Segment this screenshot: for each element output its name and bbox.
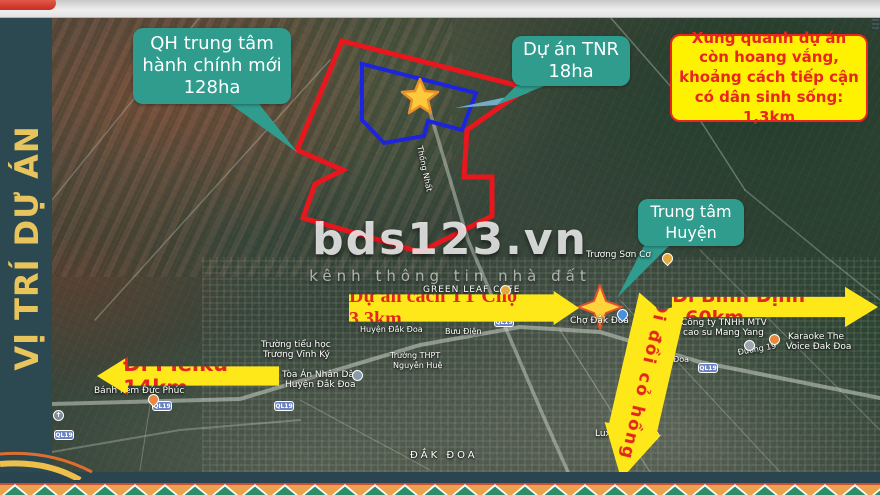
promo-map-image: bds123.vn kênh thông tin nhà đất Trương … [0,0,880,495]
arrow-market-distance: Dự án cách TT Chợ 3,3km [349,291,579,325]
watermark-title: bds123.vn [300,214,600,265]
red-pill-decoration [0,0,56,10]
corner-arc-decoration [0,450,100,480]
watermark-subtitle: kênh thông tin nhà đất [300,267,600,285]
watermark: bds123.vn kênh thông tin nhà đất [300,214,600,285]
callout-qh-admin-center: QH trung tâm hành chính mới 128ha [133,28,291,104]
callout-district-center-text: Trung tâm Huyện [638,202,744,244]
callout-tnr-text: Dự án TNR 18ha [512,39,630,84]
page-title: VỊ TRÍ DỰ ÁN [8,125,46,370]
warning-note-text: Xung quanh dự án còn hoang vắng, khoảng … [678,29,860,128]
warning-note-box: Xung quanh dự án còn hoang vắng, khoảng … [670,34,868,122]
callout-tnr-project: Dự án TNR 18ha [512,36,630,86]
callout-qh-text: QH trung tâm hành chính mới 128ha [137,33,287,99]
ethnic-pattern-border [0,483,880,495]
callout-district-center: Trung tâm Huyện [638,199,744,246]
bottom-band [0,472,880,483]
sidebar: VỊ TRÍ DỰ ÁN [0,17,52,472]
map-corner-glyph [872,19,879,29]
top-chrome-bar [0,0,880,18]
